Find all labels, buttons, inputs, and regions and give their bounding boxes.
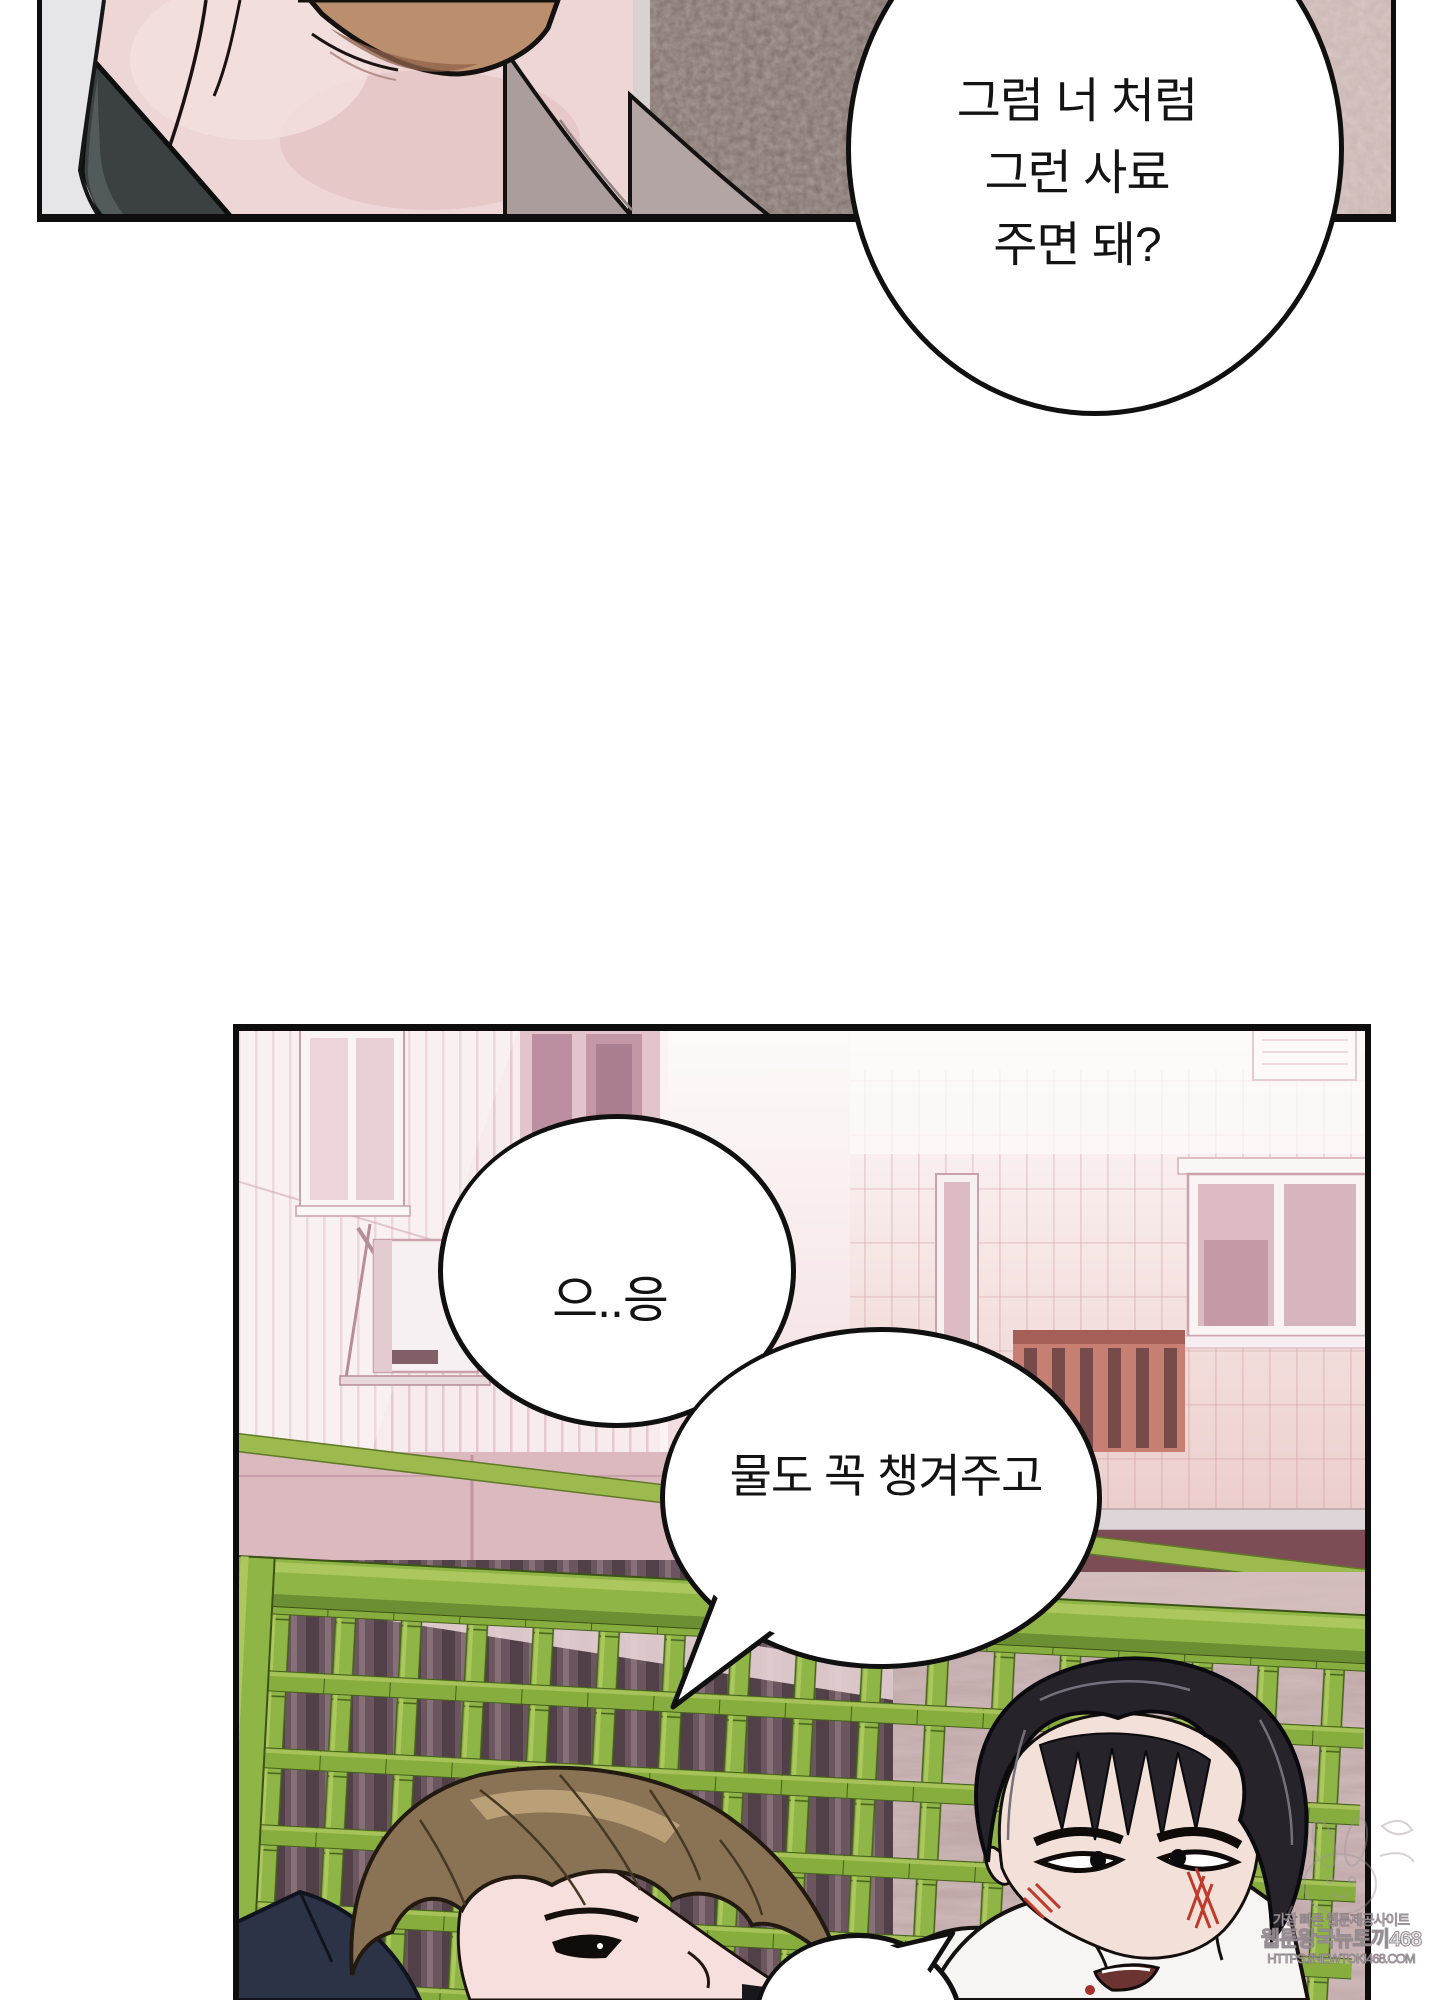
answer-text: 으..응 [480,1266,740,1334]
webtoon-page: 그럼 너 처럼 그런 사료 주면 돼? 으..응 물도 꼭 챙겨주고 가장 빠른… [0,0,1440,2000]
watermark-site-url: HTTPS://NEWTOKI468.COM [1256,1952,1426,1967]
watermark-site-name: 웹툰왕국뉴토끼468 [1256,1928,1426,1952]
site-watermark: 가장 빠른 웹툰제공사이트 웹툰왕국뉴토끼468 HTTPS://NEWTOKI… [1256,1912,1426,1967]
feed-question-text: 그럼 너 처럼 그런 사료 주면 돼? [887,66,1267,282]
feed-question-line3: 주면 돼? [887,210,1267,282]
watermark-tagline: 가장 빠른 웹툰제공사이트 [1256,1912,1426,1928]
feed-question-line1: 그럼 너 처럼 [887,66,1267,138]
water-text: 물도 꼭 챙겨주고 [666,1442,1106,1510]
feed-question-line2: 그런 사료 [887,138,1267,210]
